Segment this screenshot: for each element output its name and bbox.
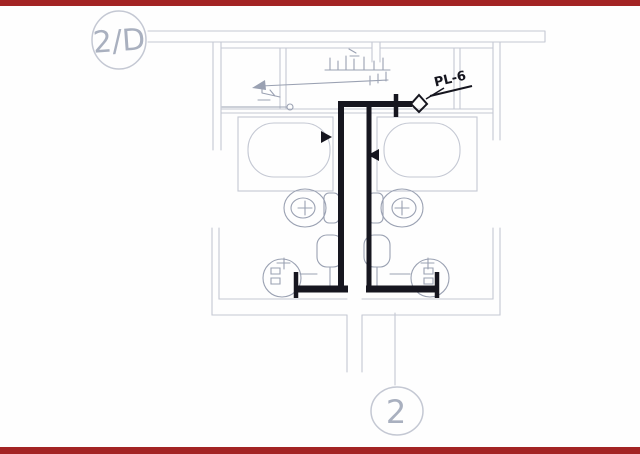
walls: [148, 31, 545, 385]
section-marker-bottom-label: 2: [386, 393, 406, 431]
bottom-right-wall: [362, 228, 500, 315]
handle-arrow-icon: [252, 80, 266, 90]
corridor-lines: [347, 315, 362, 372]
drawing-page: 2/D PL-6 2: [0, 0, 640, 454]
fixture-connectors: [300, 267, 410, 286]
bathtub-left: [248, 123, 330, 177]
mid-band-lines: [221, 109, 493, 113]
bathtub-right: [384, 123, 460, 177]
fixture-sketches: [222, 49, 449, 297]
pipe-label: PL-6: [433, 69, 468, 91]
plan-drawing: 2/D PL-6 2: [0, 0, 640, 454]
toilet-right: [368, 189, 423, 227]
top-wall: [148, 31, 545, 42]
bathtubs: [238, 117, 477, 191]
right-wall: [493, 42, 500, 140]
top-center-wall-stub: [372, 42, 380, 62]
bottom-red-bar: [0, 447, 640, 454]
flow-arrow-left-icon: [321, 131, 332, 143]
bathtub-right-enclosure: [377, 117, 477, 191]
left-wall: [213, 42, 221, 150]
section-marker-top-label: 2/D: [92, 22, 147, 61]
toilet-left: [284, 189, 339, 227]
